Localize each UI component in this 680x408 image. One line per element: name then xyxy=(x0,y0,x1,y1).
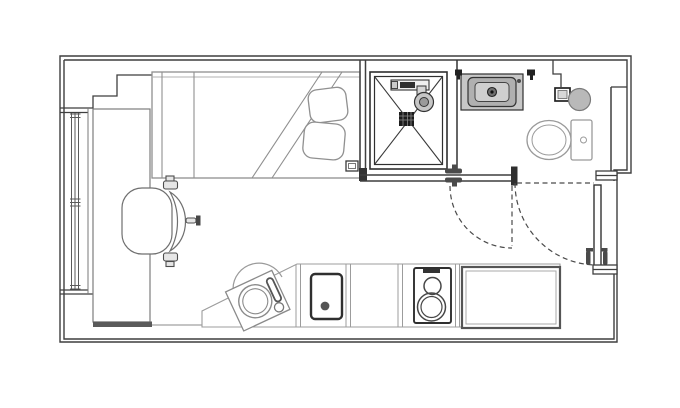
door-swing-arc xyxy=(515,183,597,265)
door-jamb xyxy=(511,167,518,186)
handle-dot xyxy=(321,302,330,311)
desk-edge xyxy=(93,322,152,328)
office-chair xyxy=(122,176,201,267)
chair-seat xyxy=(122,188,172,254)
door-swing-arc xyxy=(450,186,512,248)
socket-box xyxy=(346,161,358,171)
door-leaf-closed xyxy=(594,185,601,266)
wall-valve-right xyxy=(527,70,535,81)
storage-box xyxy=(555,88,570,101)
toilet xyxy=(527,120,592,160)
window xyxy=(60,108,93,294)
bathroom-door xyxy=(445,165,518,249)
wall-recess xyxy=(93,75,152,109)
worktop-unit xyxy=(462,267,560,328)
shower-drain xyxy=(399,112,414,126)
bed xyxy=(152,72,360,178)
floor-plan: Studio apartment floor plan xyxy=(0,0,680,408)
pillow-top xyxy=(307,86,349,123)
shower xyxy=(370,72,447,169)
washbasin xyxy=(461,74,523,110)
hob-controls xyxy=(423,269,440,274)
floor-plan-page: Studio apartment floor plan xyxy=(0,0,680,408)
pillow-bottom xyxy=(302,121,346,160)
chair-armrest-bottom xyxy=(164,253,178,267)
under-counter-appliance xyxy=(311,274,342,319)
wall-accessory xyxy=(569,89,591,111)
entrance-door xyxy=(515,171,617,274)
chair-lever xyxy=(186,216,201,226)
hob xyxy=(414,268,451,323)
